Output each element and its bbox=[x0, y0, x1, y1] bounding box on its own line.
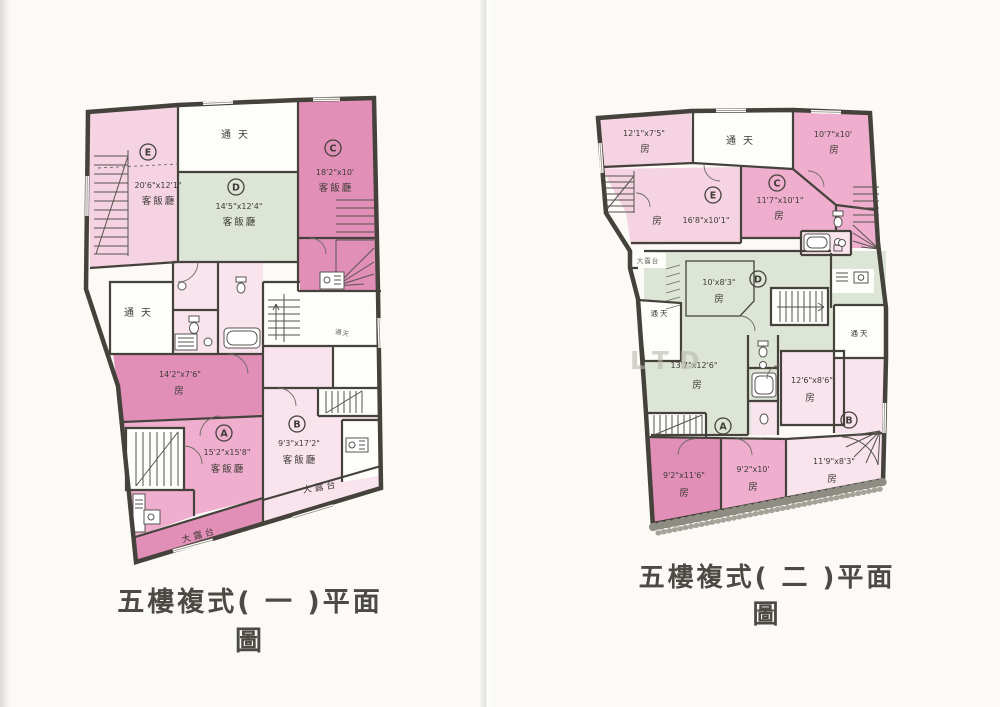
toilet-icon bbox=[237, 283, 245, 293]
room-dim: 15'2"x15'8" bbox=[203, 448, 250, 457]
room-top-left bbox=[598, 111, 693, 169]
room-type: 客飯廳 bbox=[142, 195, 177, 207]
room-dim: 14'2"x7'6" bbox=[159, 370, 201, 379]
room-type: 客飯廳 bbox=[319, 182, 354, 194]
unit-letter: D bbox=[232, 183, 240, 194]
toilet-icon bbox=[190, 323, 199, 334]
unit-letter: C bbox=[774, 179, 781, 190]
toilet-icon bbox=[236, 277, 246, 282]
skylight-label: 通天 bbox=[221, 129, 255, 141]
room-dim: 9'2"x10' bbox=[736, 465, 769, 474]
sink-icon bbox=[178, 282, 186, 290]
room-type: 房 bbox=[774, 210, 786, 222]
toilet-icon bbox=[189, 316, 199, 322]
plan1-title: 五樓複式( 一 )平面圖 bbox=[110, 580, 390, 658]
room-type: 客飯廳 bbox=[283, 454, 318, 466]
toilet-icon bbox=[760, 414, 768, 424]
bathtub-icon bbox=[752, 373, 776, 397]
sink-unit bbox=[854, 272, 868, 283]
room-type: 房 bbox=[805, 392, 817, 404]
toilet-icon bbox=[834, 217, 842, 227]
sink-icon bbox=[760, 362, 767, 369]
toilet-icon bbox=[758, 341, 768, 346]
room-type: 客飯廳 bbox=[211, 463, 246, 475]
floor-plan-2: 12'1"x7'5" 房 通天 10'7"x10' 房 E 房 16'8"x10… bbox=[586, 103, 900, 535]
room-type: 房 bbox=[692, 379, 704, 391]
kitchen-fixtures-b bbox=[346, 438, 368, 452]
unit-letter: E bbox=[710, 191, 717, 202]
room-dim: 12'1"x7'5" bbox=[623, 129, 665, 138]
room-dim: 20'6"x12'1" bbox=[134, 181, 181, 190]
kitchen-fixtures-c bbox=[320, 272, 344, 289]
sink-icon bbox=[204, 338, 212, 346]
unit-letter: E bbox=[145, 148, 152, 159]
toilet-icon bbox=[833, 211, 843, 216]
room-dim: 12'6"x8'6" bbox=[791, 376, 833, 385]
room-type: 房 bbox=[714, 293, 726, 305]
unit-letter: C bbox=[330, 144, 337, 155]
room-dim: 14'5"x12'4" bbox=[215, 202, 262, 211]
scanned-floorplan-page: E 20'6"x12'1" 客飯廳 通天 D 14'5"x12'4" 客飯廳 C… bbox=[0, 0, 1000, 707]
room-type: 房 bbox=[174, 385, 186, 397]
room-dim: 9'2"x11'6" bbox=[663, 471, 705, 480]
page-edge-shade bbox=[0, 0, 10, 707]
room-type: 房 bbox=[827, 473, 839, 485]
room-type: 房 bbox=[829, 144, 841, 156]
room-dim: 16'8"x10'1" bbox=[682, 216, 729, 225]
room-type: 房 bbox=[640, 143, 652, 155]
unit-letter: B bbox=[293, 420, 300, 431]
room-type: 房 bbox=[652, 215, 664, 227]
skylight-label: 通天 bbox=[651, 308, 670, 318]
room-dim: 10'x8'3" bbox=[702, 278, 735, 287]
unit-letter: A bbox=[719, 422, 727, 433]
sink-icon bbox=[839, 240, 846, 247]
unit-a-stair bbox=[126, 428, 184, 490]
toilet-icon bbox=[759, 347, 767, 357]
watermark-text: LTD bbox=[630, 346, 710, 375]
room-dim: 10'7"x10' bbox=[814, 130, 852, 139]
unit-letter: B bbox=[845, 416, 852, 427]
page-fold-crease bbox=[479, 0, 493, 707]
room-type: 房 bbox=[748, 481, 760, 493]
unit-letter: D bbox=[754, 275, 762, 286]
skylight-label: 通天 bbox=[124, 307, 158, 319]
terrace-label: 大露台 bbox=[637, 256, 660, 265]
landing bbox=[333, 346, 381, 388]
unit-letter: A bbox=[220, 429, 228, 440]
skylight-label: 通天 bbox=[726, 135, 760, 147]
room-dim: 11'9"x8'3" bbox=[813, 457, 855, 466]
room-type: 客飯廳 bbox=[223, 216, 258, 228]
unit-b-bathroom bbox=[263, 346, 333, 388]
bedroom-room bbox=[113, 354, 263, 422]
room-dim: 18'2"x10' bbox=[316, 168, 354, 177]
room-type: 房 bbox=[679, 487, 691, 499]
plan2-title: 五樓複式( 二 )平面圖 bbox=[626, 557, 908, 631]
room-dim: 9'3"x17'2" bbox=[278, 439, 320, 448]
sink-unit bbox=[144, 510, 160, 524]
floor-plan-1: E 20'6"x12'1" 客飯廳 通天 D 14'5"x12'4" 客飯廳 C… bbox=[78, 86, 390, 578]
skylight-label: 通天 bbox=[851, 328, 870, 338]
room-dim: 11'7"x10'1" bbox=[756, 196, 803, 205]
